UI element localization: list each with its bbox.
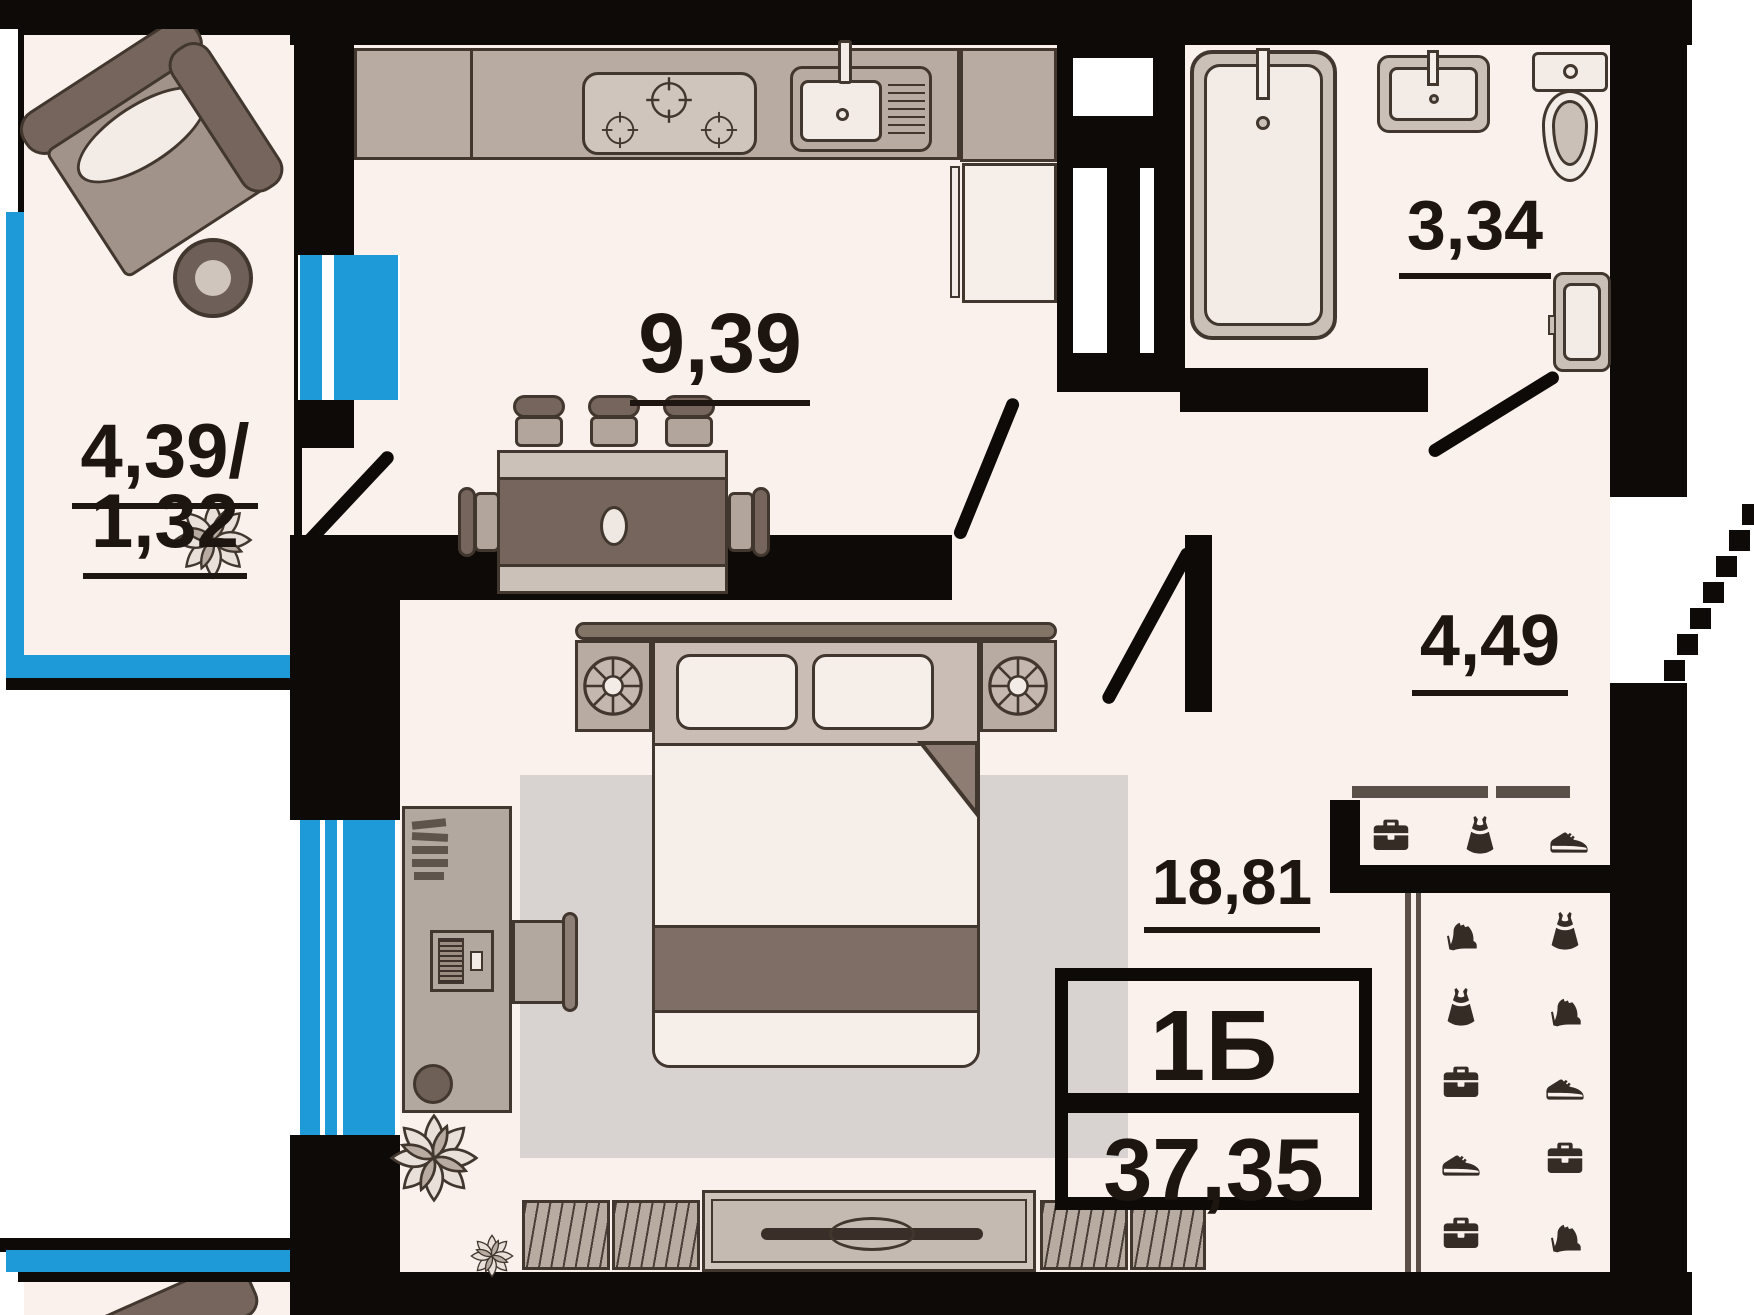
sneaker-icon: [1438, 1135, 1484, 1181]
bed: [652, 640, 980, 1068]
dining-chair: [752, 487, 770, 557]
heel-icon: [1542, 984, 1588, 1030]
apartment-type: 1Б: [1068, 989, 1359, 1104]
heel-icon: [1542, 1210, 1588, 1256]
kitchen-left-wall: [298, 45, 354, 255]
living-window: [300, 820, 320, 1145]
balcony-area-label-2: 1,32: [60, 478, 270, 579]
wardrobe-side-grid: [1438, 908, 1594, 1256]
blanket-stripe: [655, 925, 977, 1013]
dining-chair: [515, 416, 563, 447]
dining-table: [497, 450, 728, 594]
living-area-label: 18,81: [1132, 845, 1332, 933]
balcony-door-window: [300, 255, 322, 400]
briefcase-icon: [1438, 1059, 1484, 1105]
flower-wheel-icon: [581, 654, 645, 718]
dress-icon: [1457, 812, 1503, 858]
balcony: 4,39/ 1,32: [0, 0, 310, 700]
burner-icon: [700, 111, 738, 149]
dress-icon: [1542, 908, 1588, 954]
lower-balcony-glazing: [6, 1250, 292, 1272]
tv-console: [702, 1190, 1036, 1272]
dining-chair: [590, 416, 638, 447]
lower-balcony: [0, 1230, 300, 1315]
dining-chair: [728, 492, 754, 552]
balcony-glazing-left: [6, 212, 24, 678]
basin-tap: [1427, 50, 1439, 86]
burner-icon: [601, 111, 639, 149]
bathtub: [1190, 50, 1337, 340]
bathroom-area-label: 3,34: [1385, 185, 1565, 279]
sneaker-icon: [1546, 812, 1592, 858]
sink-tap: [838, 40, 852, 84]
apartment-total-area: 37,35: [1068, 1119, 1359, 1221]
toilet-button: [1563, 64, 1578, 79]
bed-headboard-rail: [575, 622, 1057, 640]
floorplan-canvas: 4,39/ 1,32: [0, 0, 1754, 1315]
apartment-label-box: 1Б 37,35: [1055, 968, 1372, 1210]
washbasin: [1377, 55, 1490, 133]
computer-monitor: [430, 930, 494, 992]
hallway-area-label: 4,49: [1390, 600, 1590, 696]
wardrobe-top: [1368, 806, 1592, 864]
washing-machine: [1553, 272, 1611, 372]
stool: [413, 1064, 453, 1104]
plant-icon: [470, 1234, 514, 1278]
balcony-glazing-bottom: [6, 655, 294, 678]
plant-icon: [389, 1113, 479, 1203]
pillow: [676, 654, 798, 730]
kitchen-area-label: 9,39: [620, 295, 820, 406]
right-wall: [1610, 45, 1687, 497]
bath-tap: [1256, 48, 1270, 100]
top-wall: [290, 0, 1692, 45]
bathroom-wall: [1180, 368, 1428, 412]
living-window: [325, 820, 337, 1152]
balcony-side-table: [173, 238, 253, 318]
dining-chair: [665, 416, 713, 447]
top-wall: [0, 0, 290, 29]
flower-wheel-icon: [986, 654, 1050, 718]
shelf-unit: [612, 1200, 700, 1270]
briefcase-icon: [1438, 1210, 1484, 1256]
living-window: [343, 820, 395, 1135]
desk-chair-back: [562, 912, 578, 1012]
kitchen-counter-corner: [960, 48, 1057, 162]
pillow: [812, 654, 934, 730]
sneaker-icon: [1542, 1059, 1588, 1105]
heel-icon: [1438, 908, 1484, 954]
dining-chair: [474, 492, 500, 552]
bottom-wall: [290, 1272, 1692, 1315]
briefcase-icon: [1368, 812, 1414, 858]
dining-chair: [513, 395, 565, 418]
lower-balcony-armchair: [89, 1282, 264, 1315]
shelf-unit: [522, 1200, 610, 1270]
burner-icon: [645, 76, 693, 124]
blanket-fold: [918, 740, 980, 818]
fridge: [962, 163, 1057, 303]
dress-icon: [1438, 984, 1484, 1030]
briefcase-icon: [1542, 1135, 1588, 1181]
right-wall: [1610, 683, 1687, 1315]
balcony-door-window: [334, 255, 398, 400]
